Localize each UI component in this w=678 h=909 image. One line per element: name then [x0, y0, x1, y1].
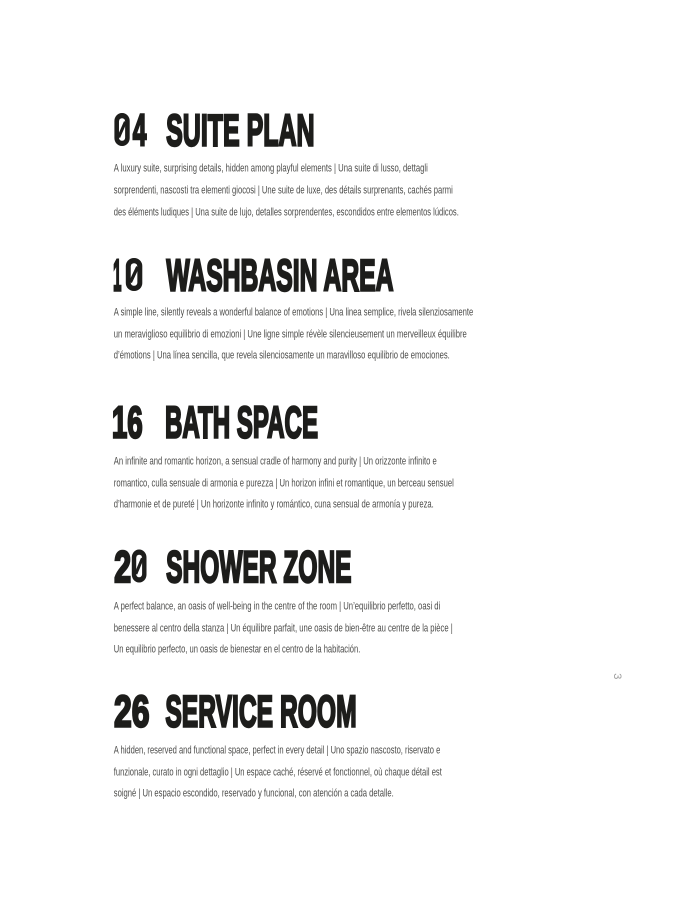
svg-text:1: 1 — [113, 251, 122, 300]
svg-text:des éléments ludiques | Una su: des éléments ludiques | Una suite de luj… — [114, 207, 459, 219]
svg-text:26: 26 — [114, 687, 150, 736]
svg-text:d’harmonie et de pureté | Un h: d’harmonie et de pureté | Un horizonte i… — [114, 499, 434, 511]
svg-text:A perfect balance, an oasis of: A perfect balance, an oasis of well-bein… — [114, 601, 441, 613]
svg-text:4: 4 — [133, 106, 147, 155]
svg-text:un meraviglioso equilibrio di: un meraviglioso equilibrio di emozioni |… — [114, 329, 467, 341]
svg-text:A simple line, silently reveal: A simple line, silently reveals a wonder… — [114, 307, 474, 319]
svg-text:romantico, culla sensuale di a: romantico, culla sensuale di armonia e p… — [114, 478, 454, 490]
svg-text:d’émotions | Una línea sencill: d’émotions | Una línea sencilla, que rev… — [114, 350, 450, 362]
svg-text:benessere al centro della stan: benessere al centro della stanza | Un éq… — [114, 623, 453, 635]
svg-text:funzionale, curato in ogni det: funzionale, curato in ogni dettaglio | U… — [114, 767, 442, 779]
svg-text:sorprendenti, nascosti tra ele: sorprendenti, nascosti tra elementi gioc… — [114, 185, 453, 197]
svg-text:A luxury suite, surprising det: A luxury suite, surprising details, hidd… — [114, 163, 428, 175]
svg-text:SHOWER ZONE: SHOWER ZONE — [166, 543, 351, 592]
svg-text:Un equilibrio perfecto, un oas: Un equilibrio perfecto, un oasis de bien… — [114, 644, 360, 656]
svg-text:16: 16 — [112, 398, 143, 447]
svg-text:2: 2 — [114, 543, 131, 592]
svg-text:WASHBASIN AREA: WASHBASIN AREA — [166, 251, 393, 300]
svg-text:SERVICE ROOM: SERVICE ROOM — [165, 687, 356, 736]
svg-text:BATH SPACE: BATH SPACE — [165, 398, 318, 447]
svg-text:SUITE PLAN: SUITE PLAN — [166, 106, 314, 155]
svg-text:3: 3 — [611, 673, 623, 679]
svg-text:A hidden, reserved and functio: A hidden, reserved and functional space,… — [114, 745, 441, 757]
svg-text:soigné | Un espacio escondido,: soigné | Un espacio escondido, reservado… — [114, 788, 394, 800]
svg-text:An infinite and romantic horiz: An infinite and romantic horizon, a sens… — [114, 456, 437, 468]
